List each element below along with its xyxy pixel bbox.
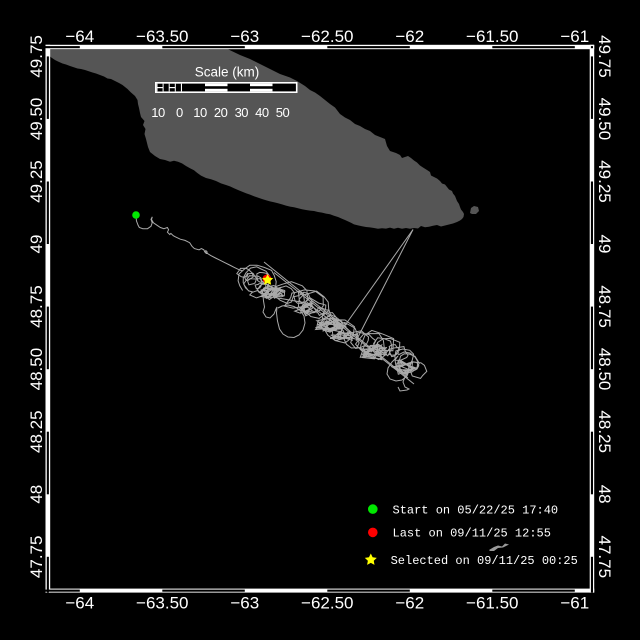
svg-text:30: 30 (235, 105, 249, 120)
svg-text:−62.50: −62.50 (301, 27, 353, 46)
svg-text:49.50: 49.50 (595, 98, 614, 141)
svg-text:48.25: 48.25 (27, 410, 46, 453)
svg-text:−62: −62 (395, 594, 424, 613)
svg-text:47.75: 47.75 (595, 536, 614, 579)
svg-text:48: 48 (27, 485, 46, 504)
svg-text:50: 50 (276, 105, 290, 120)
svg-text:−61.50: −61.50 (466, 27, 518, 46)
svg-text:Start on 05/22/25 17:40: Start on 05/22/25 17:40 (393, 503, 559, 517)
svg-text:−63.50: −63.50 (136, 27, 188, 46)
svg-text:49.75: 49.75 (27, 35, 46, 78)
svg-text:40: 40 (255, 105, 269, 120)
svg-text:48.75: 48.75 (27, 285, 46, 328)
svg-text:Scale (km): Scale (km) (195, 65, 260, 80)
svg-text:0: 0 (176, 105, 183, 120)
svg-text:Last on 09/11/25 12:55: Last on 09/11/25 12:55 (393, 527, 551, 541)
svg-text:−61.50: −61.50 (466, 594, 518, 613)
svg-text:−63: −63 (230, 594, 259, 613)
svg-text:20: 20 (214, 105, 228, 120)
svg-text:47.75: 47.75 (27, 536, 46, 579)
svg-text:−62.50: −62.50 (301, 594, 353, 613)
svg-text:49: 49 (27, 235, 46, 254)
svg-text:−63: −63 (230, 27, 259, 46)
svg-text:48.25: 48.25 (595, 410, 614, 453)
svg-text:−61: −61 (560, 27, 589, 46)
svg-text:48: 48 (595, 485, 614, 504)
svg-text:−61: −61 (560, 594, 589, 613)
svg-text:−64: −64 (65, 594, 94, 613)
svg-text:49.75: 49.75 (595, 35, 614, 78)
svg-text:−63.50: −63.50 (136, 594, 188, 613)
svg-text:48.50: 48.50 (595, 348, 614, 391)
svg-text:49: 49 (595, 235, 614, 254)
svg-text:10: 10 (151, 105, 165, 120)
svg-text:−62: −62 (395, 27, 424, 46)
svg-text:48.75: 48.75 (595, 285, 614, 328)
svg-text:49.25: 49.25 (27, 160, 46, 203)
svg-text:48.50: 48.50 (27, 348, 46, 391)
svg-text:−64: −64 (65, 27, 94, 46)
svg-text:10: 10 (193, 105, 207, 120)
svg-text:49.25: 49.25 (595, 160, 614, 203)
svg-text:49.50: 49.50 (27, 98, 46, 141)
svg-text:Selected on 09/11/25 00:25: Selected on 09/11/25 00:25 (391, 554, 578, 568)
